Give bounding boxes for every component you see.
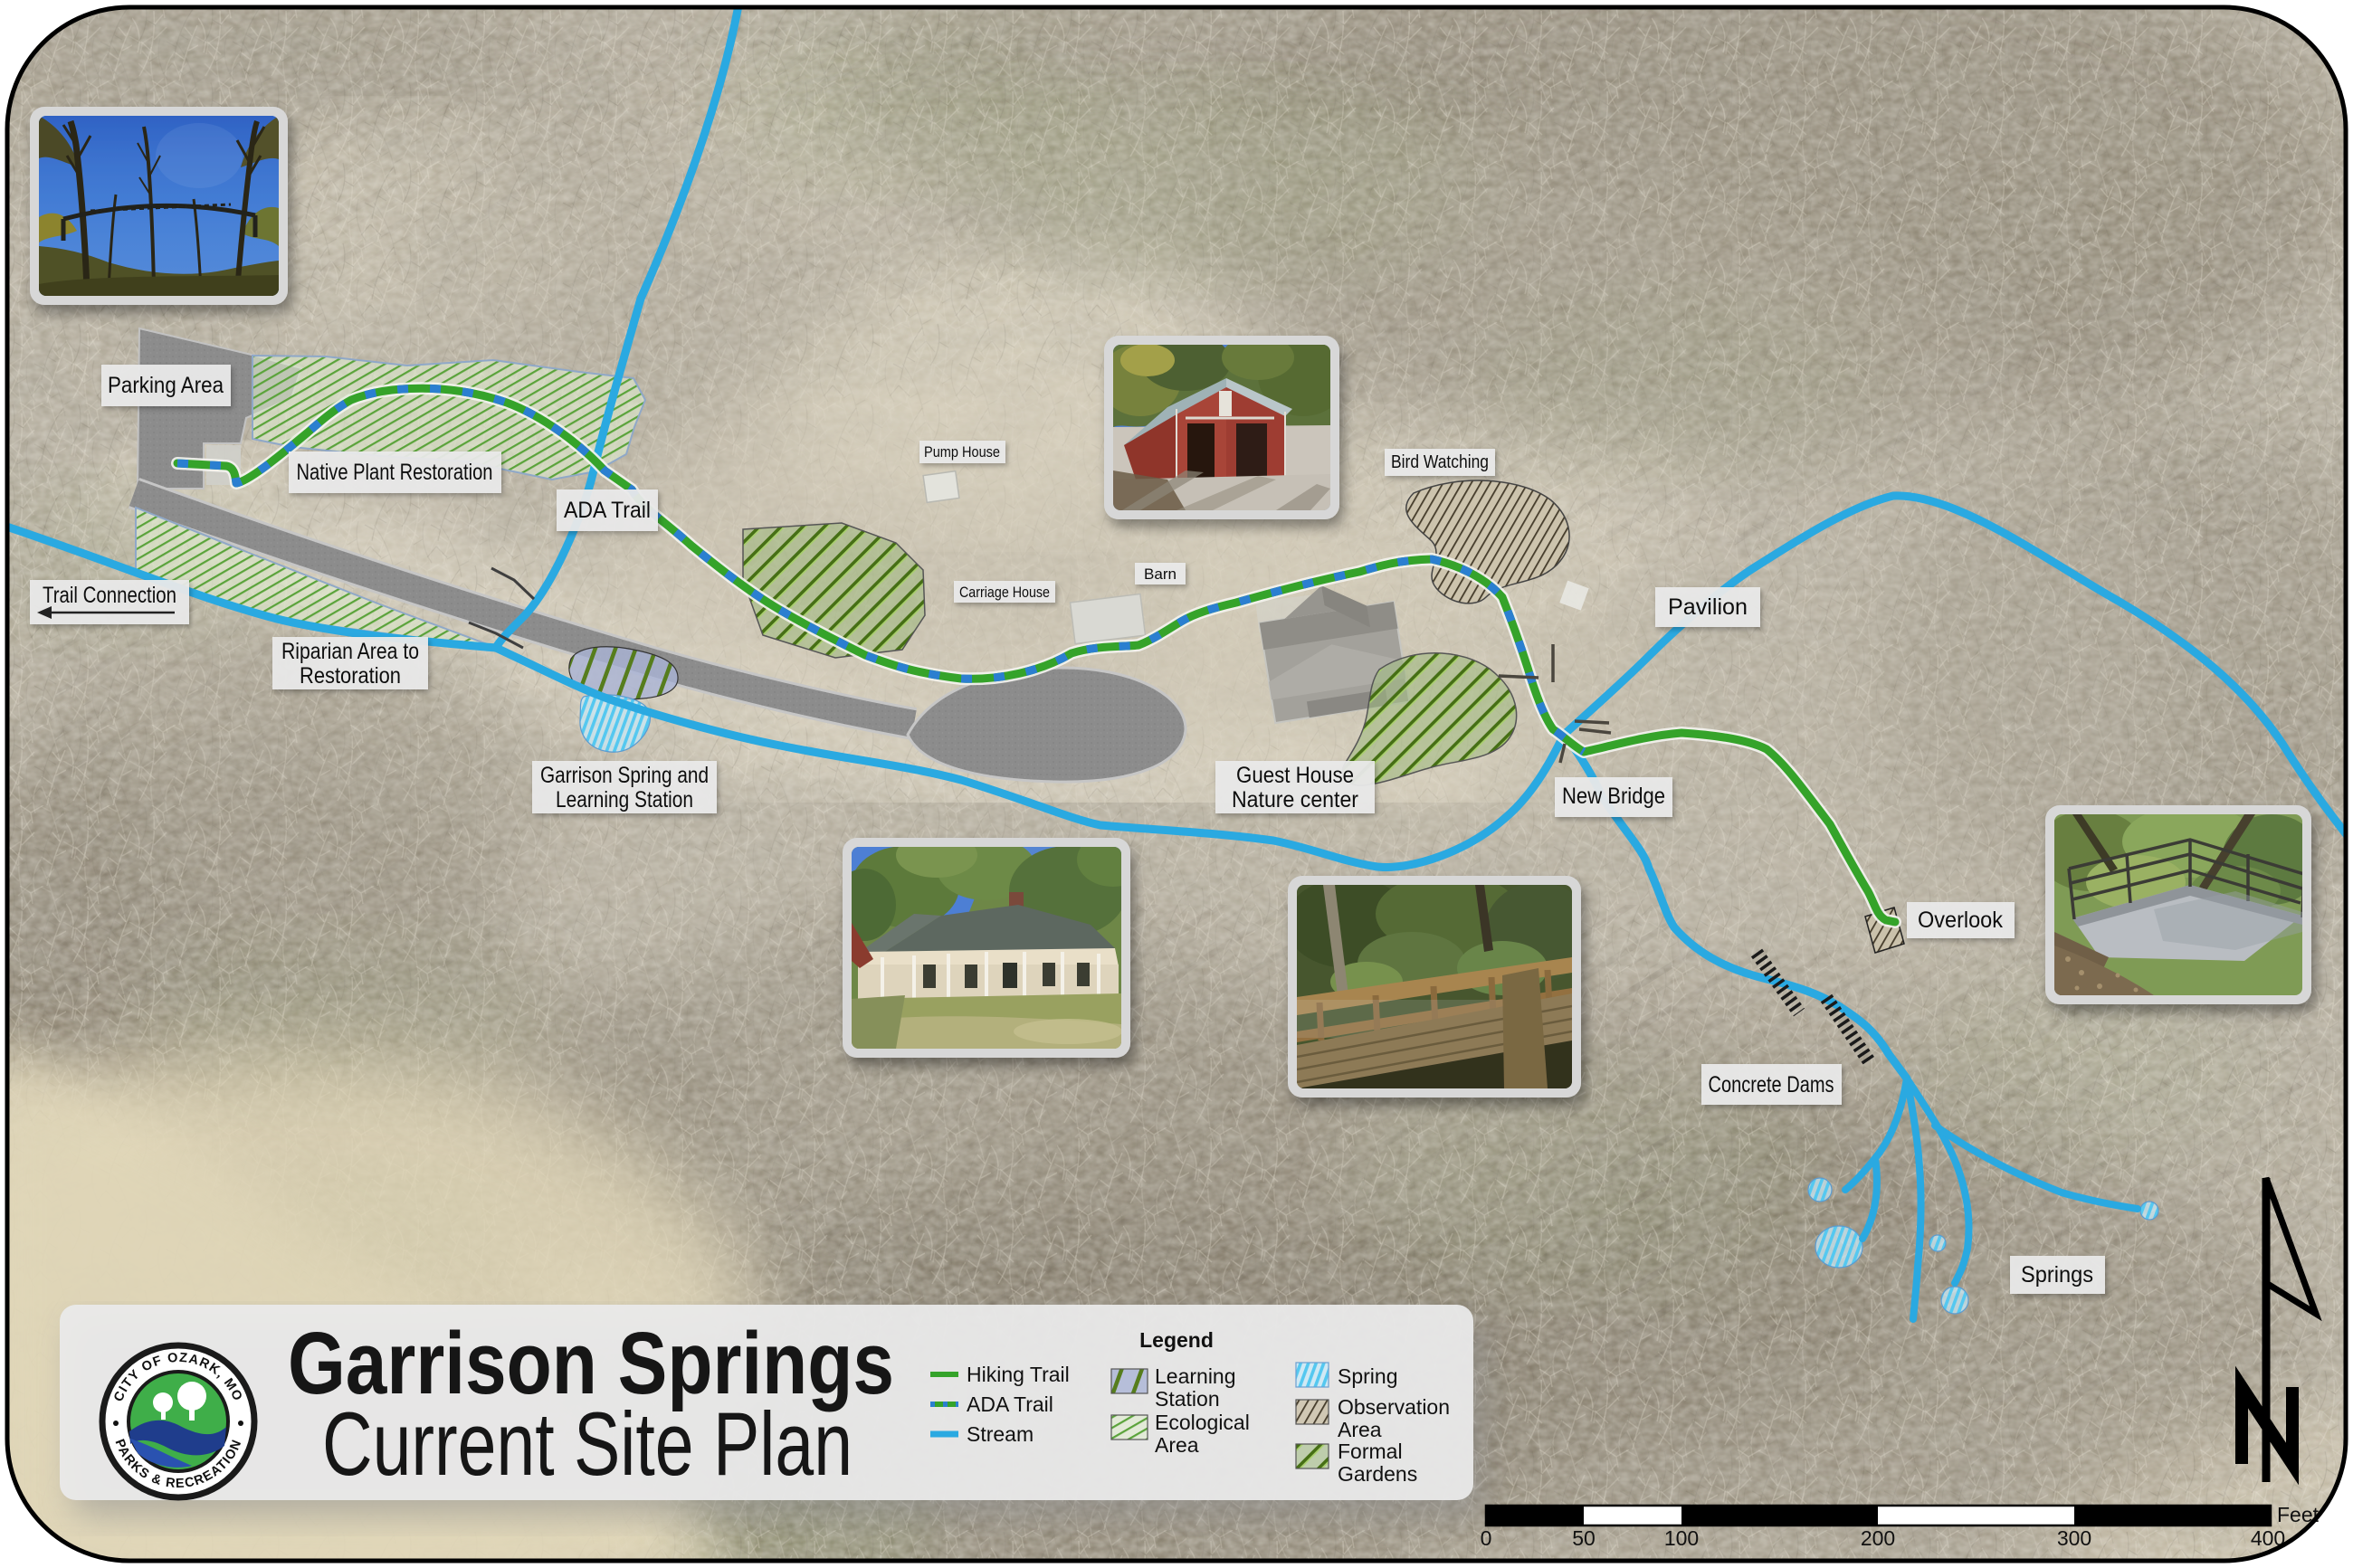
svg-text:Area: Area (1155, 1433, 1199, 1457)
svg-text:Learning Station: Learning Station (556, 787, 693, 813)
svg-text:Garrison Spring and: Garrison Spring and (540, 763, 709, 788)
svg-text:Guest House: Guest House (1236, 763, 1354, 788)
svg-text:Springs: Springs (2021, 1262, 2093, 1288)
svg-text:Native Plant Restoration: Native Plant Restoration (297, 460, 493, 485)
svg-text:0: 0 (1481, 1526, 1492, 1550)
svg-text:Parking Area: Parking Area (108, 373, 224, 398)
svg-text:Pavilion: Pavilion (1668, 594, 1748, 620)
svg-text:Observation: Observation (1338, 1395, 1450, 1419)
svg-text:Hiking Trail: Hiking Trail (967, 1363, 1070, 1386)
svg-text:Formal: Formal (1338, 1440, 1403, 1463)
svg-text:Carriage House: Carriage House (959, 584, 1050, 601)
svg-text:Learning: Learning (1155, 1364, 1236, 1388)
svg-text:Ecological: Ecological (1155, 1411, 1250, 1434)
svg-text:Nature center: Nature center (1232, 787, 1358, 813)
svg-text:ADA Trail: ADA Trail (564, 498, 651, 523)
svg-text:50: 50 (1572, 1526, 1596, 1550)
svg-text:Area: Area (1338, 1418, 1382, 1441)
svg-text:200: 200 (1861, 1526, 1895, 1550)
svg-text:Legend: Legend (1139, 1328, 1214, 1352)
svg-text:Pump House: Pump House (924, 443, 1000, 461)
svg-text:100: 100 (1664, 1526, 1699, 1550)
svg-text:Overlook: Overlook (1918, 908, 2003, 933)
svg-text:Station: Station (1155, 1387, 1220, 1411)
svg-text:Stream: Stream (967, 1422, 1034, 1446)
svg-text:Restoration: Restoration (300, 663, 401, 689)
svg-text:Riparian Area to: Riparian Area to (281, 639, 419, 664)
svg-text:Spring: Spring (1338, 1364, 1397, 1388)
svg-text:Gardens: Gardens (1338, 1462, 1417, 1486)
svg-text:Current Site Plan: Current Site Plan (322, 1393, 853, 1494)
svg-text:Bird Watching: Bird Watching (1391, 452, 1489, 472)
svg-text:300: 300 (2057, 1526, 2091, 1550)
svg-text:Trail Connection: Trail Connection (43, 583, 176, 608)
svg-text:New Bridge: New Bridge (1562, 784, 1665, 809)
svg-text:ADA Trail: ADA Trail (967, 1392, 1053, 1416)
svg-text:Concrete Dams: Concrete Dams (1709, 1072, 1834, 1098)
svg-text:Barn: Barn (1144, 565, 1176, 583)
